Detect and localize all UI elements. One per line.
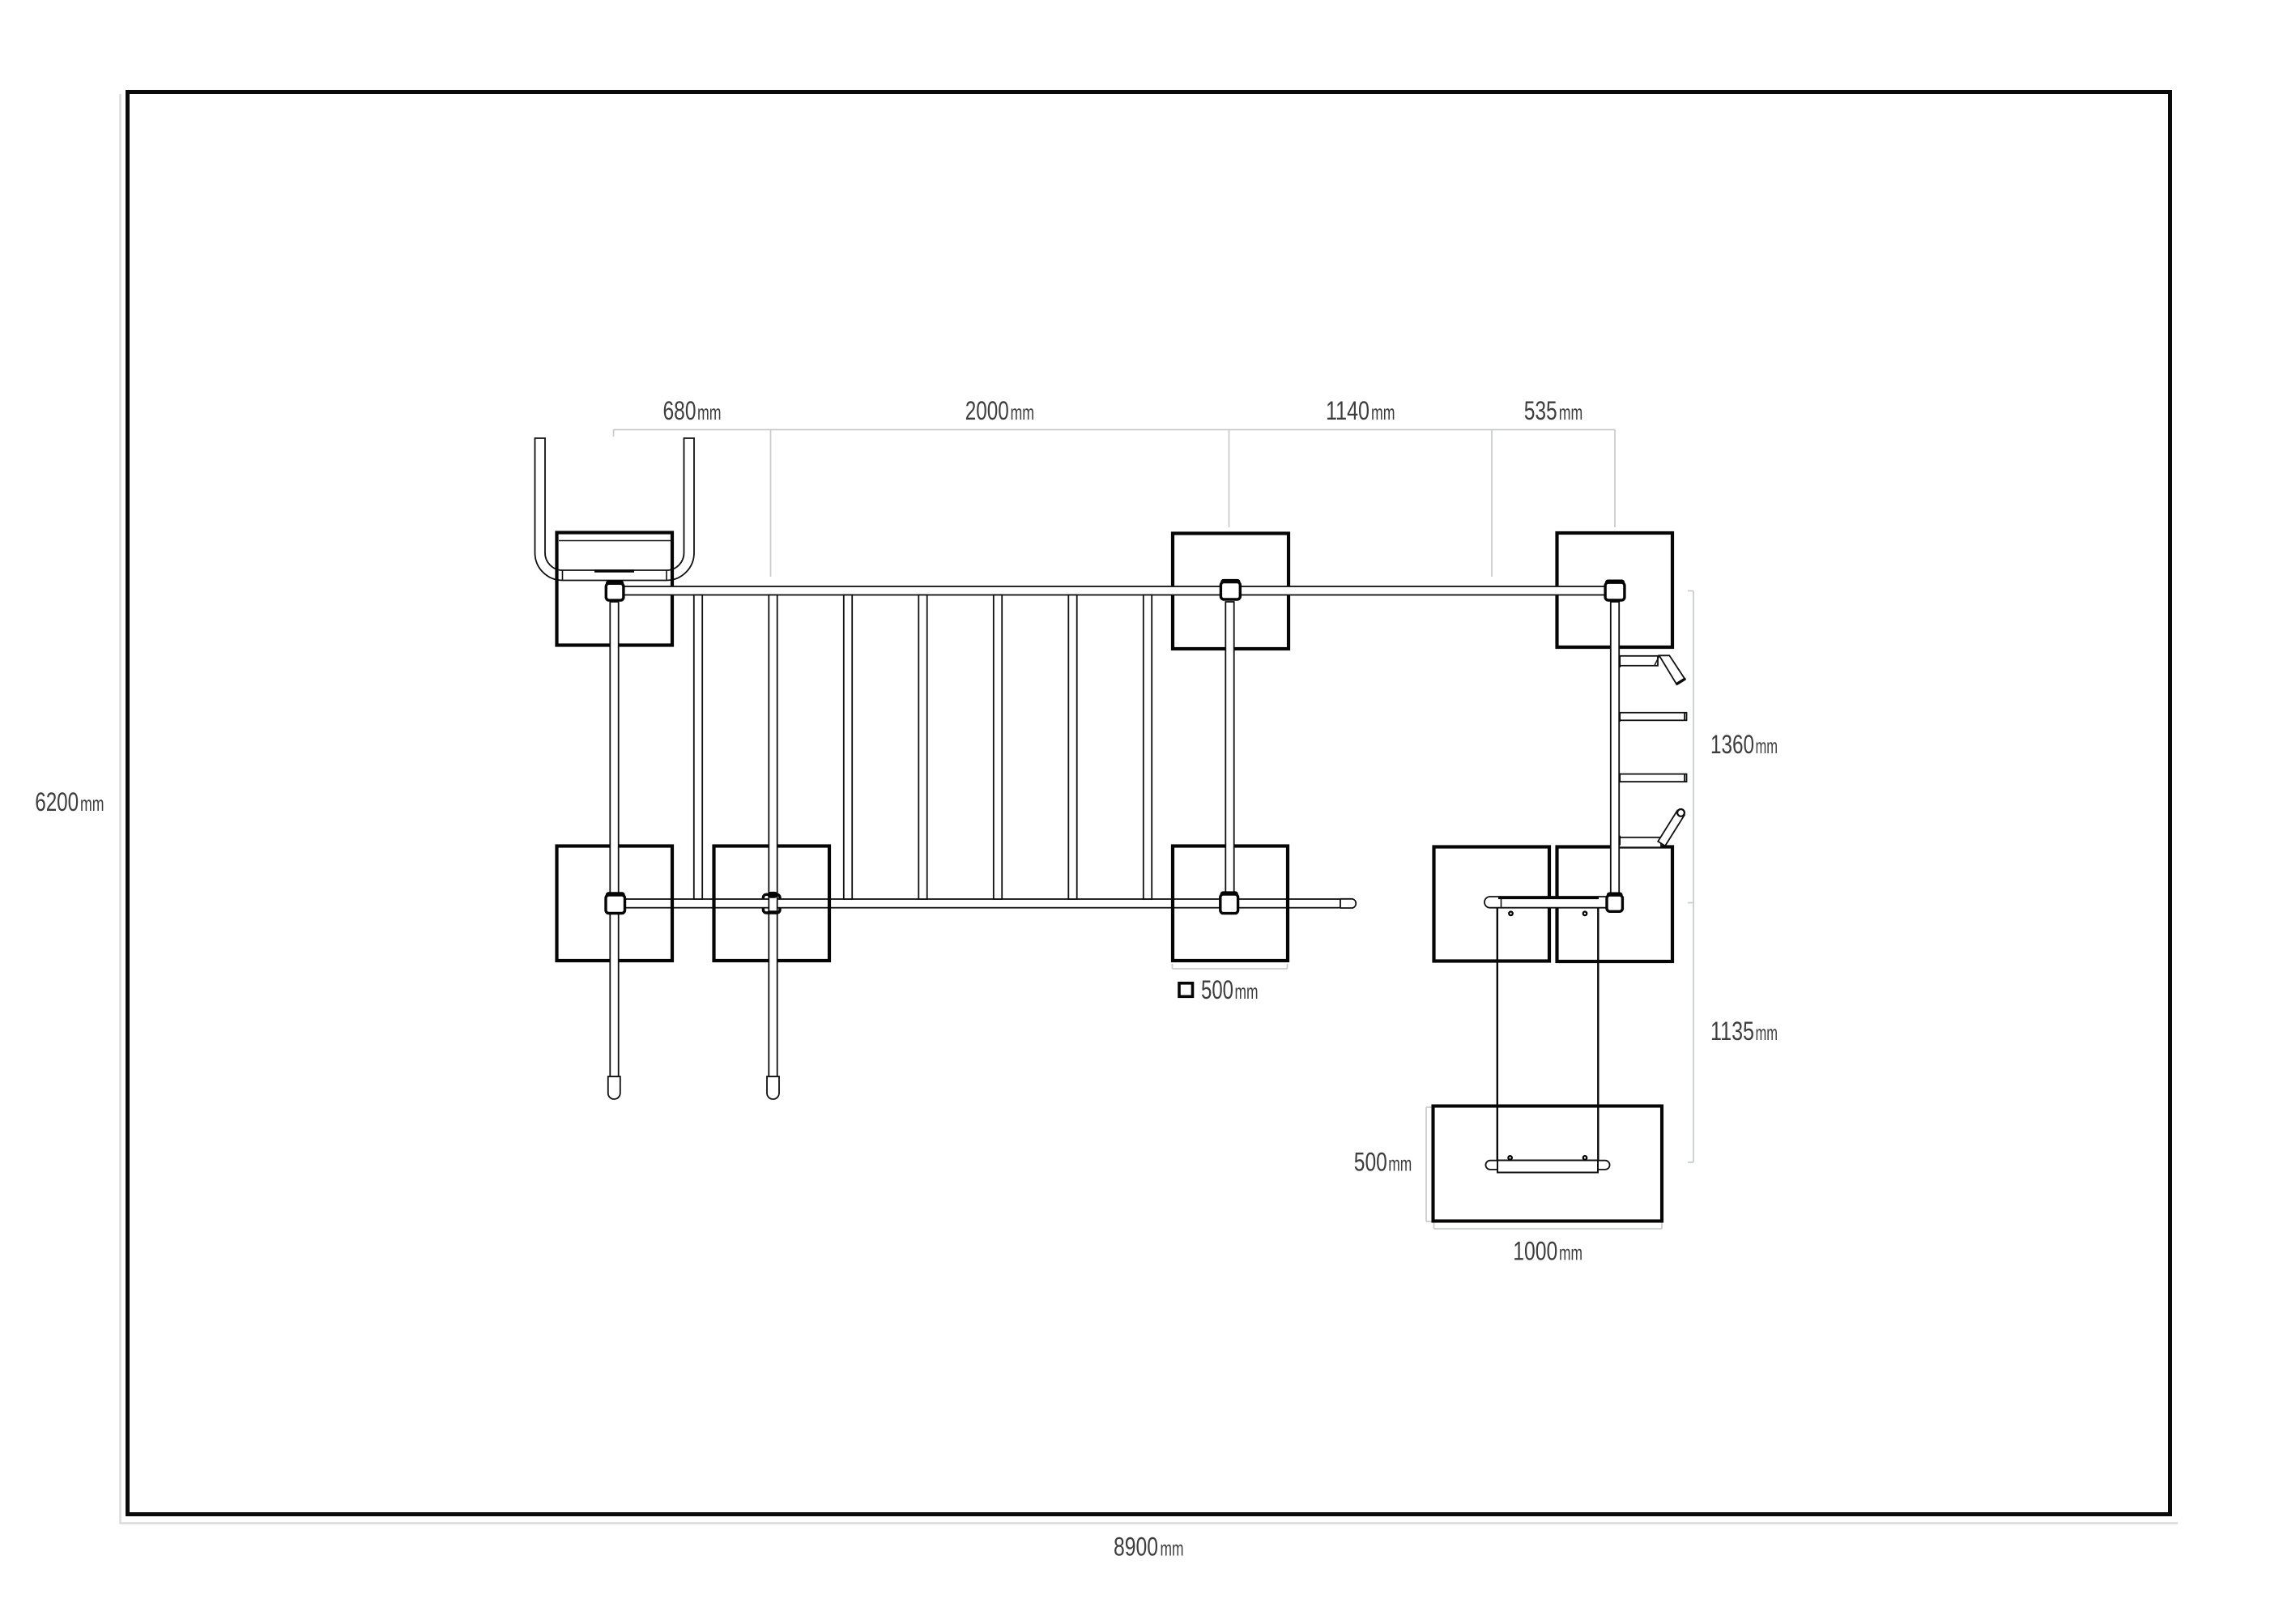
svg-text:mm: mm: [1756, 1021, 1778, 1045]
svg-text:680: 680: [663, 396, 696, 425]
svg-text:500: 500: [1354, 1148, 1387, 1177]
svg-text:mm: mm: [1756, 734, 1778, 758]
svg-text:mm: mm: [1371, 400, 1395, 424]
svg-text:mm: mm: [1559, 1240, 1582, 1264]
svg-text:mm: mm: [1388, 1152, 1412, 1176]
svg-text:mm: mm: [1559, 400, 1583, 424]
svg-text:6200: 6200: [35, 787, 79, 816]
svg-text:1360: 1360: [1710, 730, 1754, 759]
svg-text:mm: mm: [697, 400, 722, 424]
svg-text:1140: 1140: [1326, 396, 1370, 425]
svg-text:1135: 1135: [1710, 1017, 1754, 1046]
svg-text:2000: 2000: [965, 396, 1009, 425]
svg-text:8900: 8900: [1114, 1532, 1158, 1562]
svg-text:mm: mm: [1161, 1537, 1184, 1561]
svg-text:535: 535: [1524, 396, 1557, 425]
svg-text:500: 500: [1201, 975, 1233, 1004]
svg-text:mm: mm: [1235, 979, 1259, 1004]
svg-text:mm: mm: [1011, 400, 1035, 424]
svg-text:1000: 1000: [1513, 1236, 1557, 1265]
svg-text:mm: mm: [80, 791, 104, 816]
